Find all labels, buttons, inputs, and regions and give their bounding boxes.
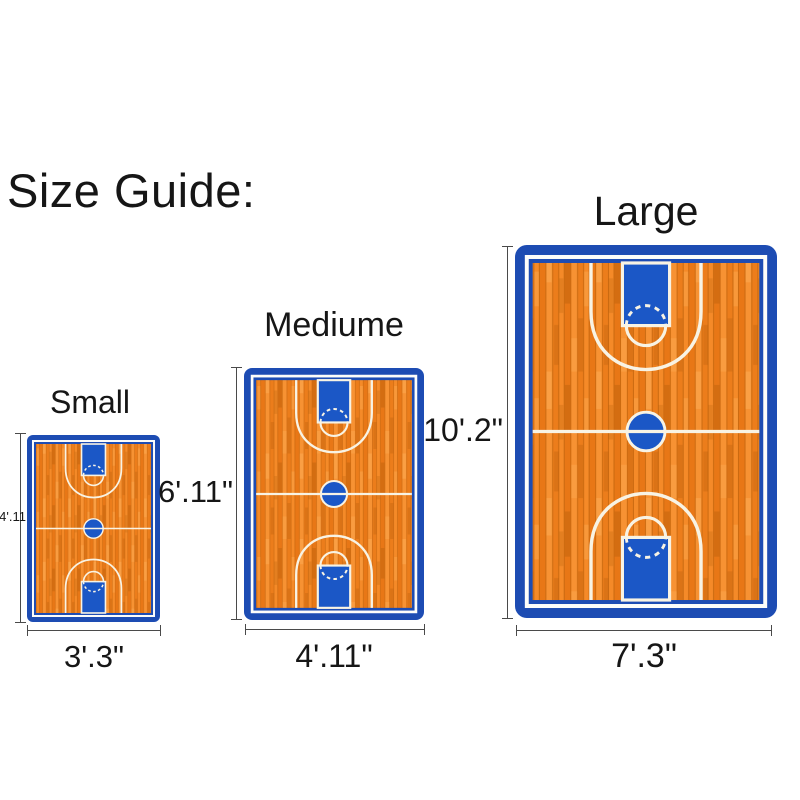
basketball-court-rug-small xyxy=(27,435,160,622)
size-label-medium: Mediume xyxy=(244,306,424,345)
basketball-court-rug-large xyxy=(515,245,777,618)
width-dimension-line-small xyxy=(27,630,161,631)
size-guide-image: Size Guide: Small 4'.11 3'.3" Mediume 6'… xyxy=(0,0,800,800)
width-dimension-line-medium xyxy=(245,629,425,630)
width-value-medium: 4'.11" xyxy=(244,638,424,675)
height-dimension-line-medium xyxy=(236,367,237,620)
width-dimension-line-large xyxy=(516,630,772,631)
width-value-small: 3'.3" xyxy=(27,639,161,675)
height-value-small: 4'.11 xyxy=(0,509,26,524)
size-label-large: Large xyxy=(515,188,777,235)
size-label-small: Small xyxy=(14,384,166,421)
height-value-large: 10'.2" xyxy=(422,412,503,449)
page-title: Size Guide: xyxy=(7,163,255,218)
width-value-large: 7'.3" xyxy=(516,637,772,676)
height-value-medium: 6'.11" xyxy=(158,474,232,510)
height-dimension-line-large xyxy=(507,246,508,619)
basketball-court-rug-medium xyxy=(244,368,424,620)
height-dimension-line-small xyxy=(20,433,21,623)
